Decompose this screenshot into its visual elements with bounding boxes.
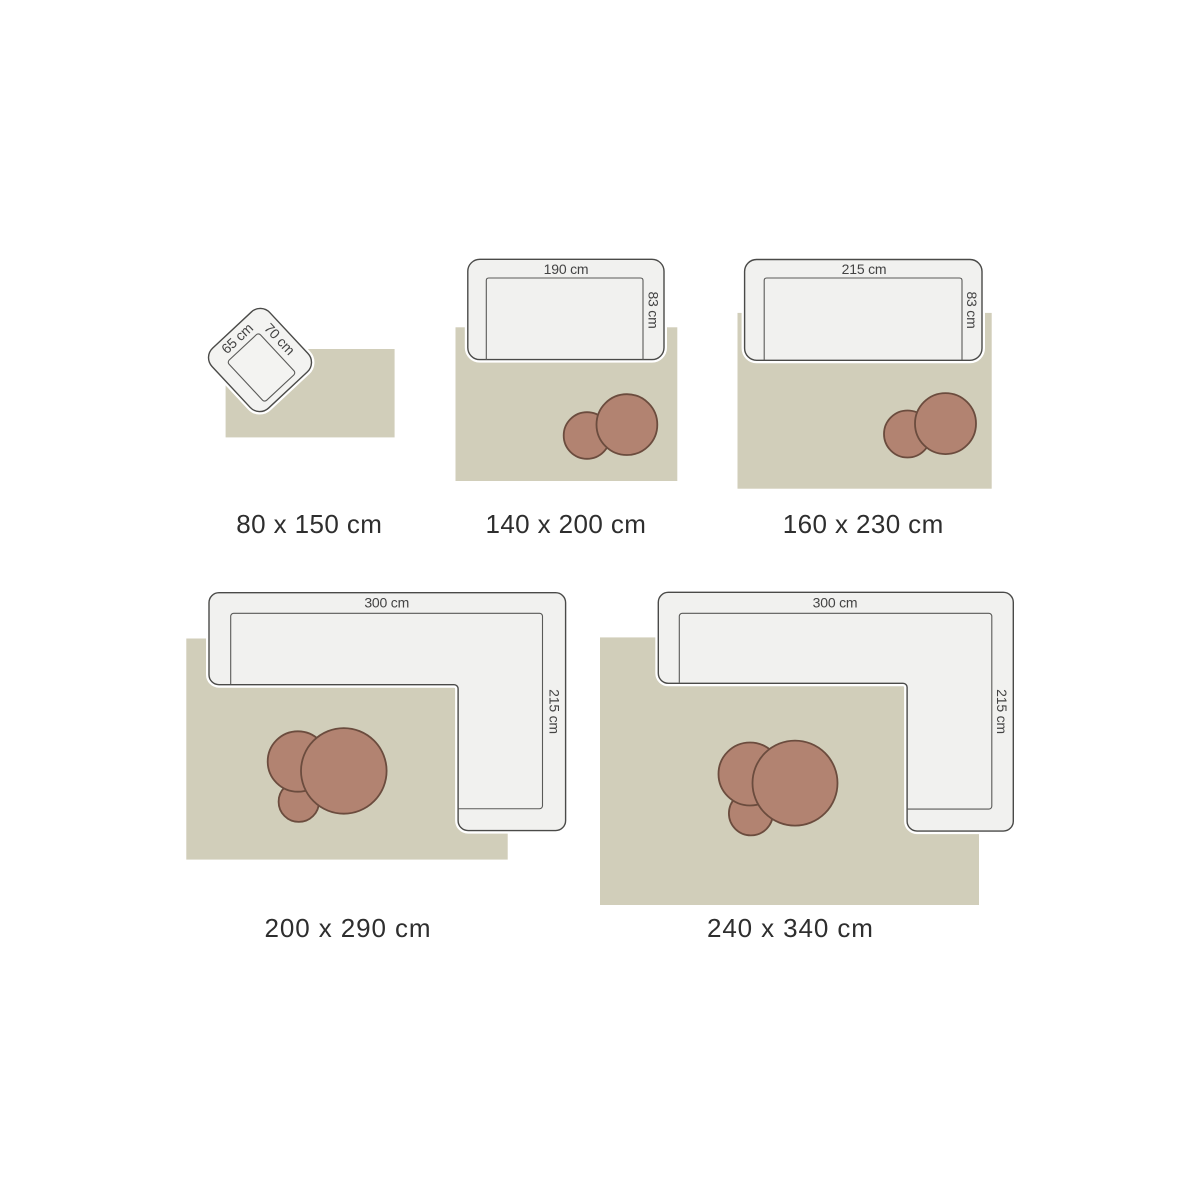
svg-text:160 x 230 cm: 160 x 230 cm <box>783 509 944 539</box>
svg-text:80 x 150 cm: 80 x 150 cm <box>236 509 382 539</box>
svg-text:215 cm: 215 cm <box>547 689 563 734</box>
svg-text:215 cm: 215 cm <box>994 689 1010 734</box>
svg-text:83 cm: 83 cm <box>964 291 980 328</box>
svg-text:200 x 290 cm: 200 x 290 cm <box>265 913 432 943</box>
svg-text:83 cm: 83 cm <box>646 291 662 328</box>
svg-text:240 x 340 cm: 240 x 340 cm <box>707 913 874 943</box>
svg-text:215 cm: 215 cm <box>842 261 887 277</box>
svg-text:140 x 200 cm: 140 x 200 cm <box>485 509 646 539</box>
svg-text:300 cm: 300 cm <box>813 594 858 610</box>
svg-text:190 cm: 190 cm <box>544 261 589 277</box>
svg-text:300 cm: 300 cm <box>364 595 409 611</box>
